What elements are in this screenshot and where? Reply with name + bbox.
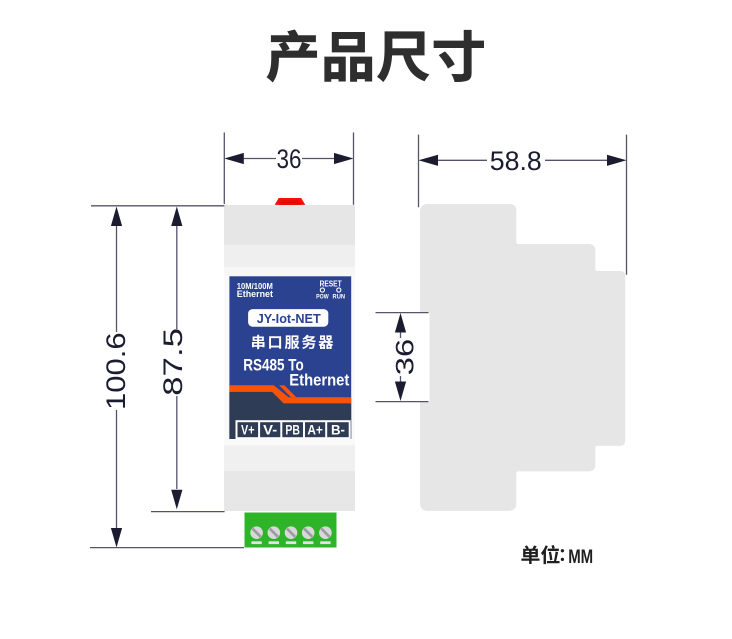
- svg-text:JY-Iot-NET: JY-Iot-NET: [257, 311, 321, 326]
- svg-text:POW: POW: [316, 293, 329, 300]
- svg-text:Ethernet: Ethernet: [237, 289, 273, 299]
- svg-text:58.8: 58.8: [490, 146, 542, 176]
- svg-text:36: 36: [277, 144, 302, 174]
- svg-text:V+: V+: [241, 422, 255, 437]
- svg-text:36: 36: [392, 339, 420, 376]
- svg-text:87.5: 87.5: [158, 328, 188, 396]
- svg-text:PB: PB: [285, 422, 300, 437]
- svg-text:A+: A+: [307, 422, 323, 437]
- svg-text:RUN: RUN: [333, 293, 346, 300]
- svg-text:V-: V-: [263, 422, 277, 437]
- svg-text:100.6: 100.6: [101, 332, 131, 410]
- svg-text:B-: B-: [331, 422, 345, 437]
- svg-text:Ethernet: Ethernet: [289, 372, 350, 390]
- svg-text:RESET: RESET: [320, 279, 342, 288]
- svg-text:MM: MM: [568, 546, 593, 568]
